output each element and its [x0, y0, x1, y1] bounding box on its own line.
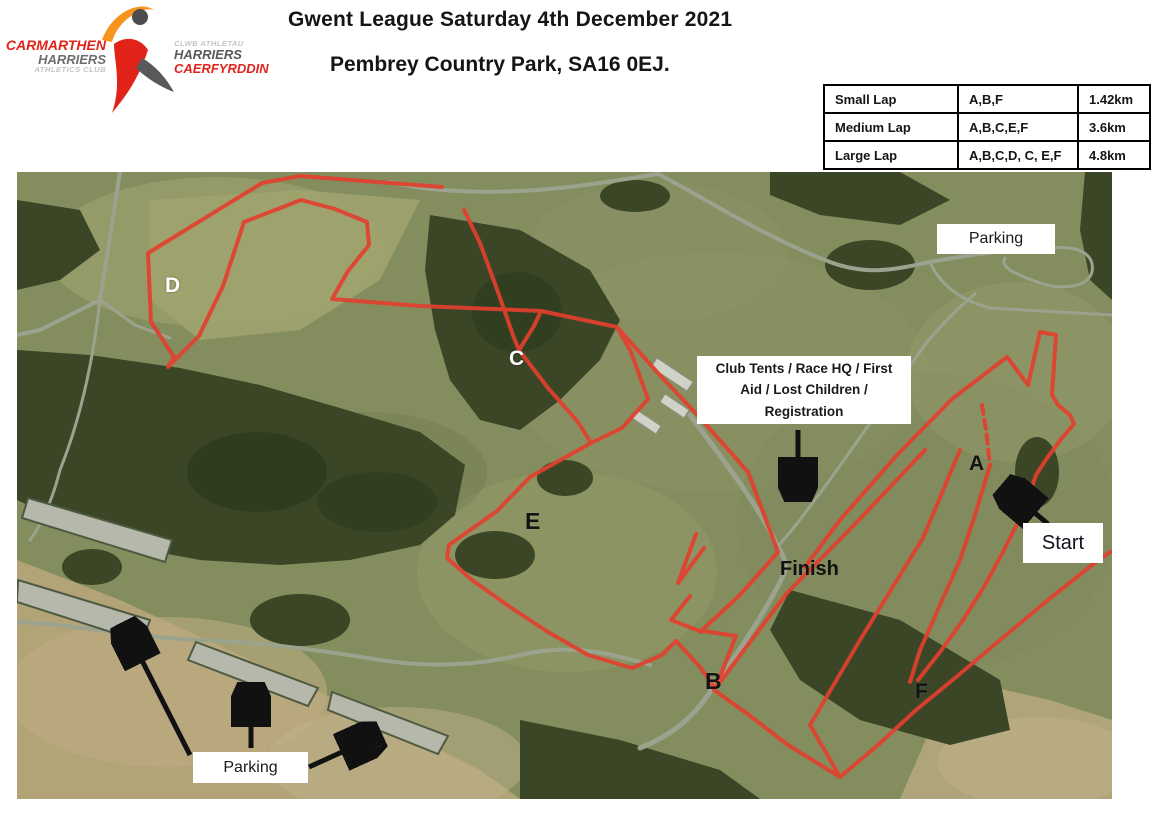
lap-sections-cell: A,B,C,D, C, E,F	[958, 141, 1078, 169]
checkpoint-b: B	[705, 668, 722, 695]
parking-label-top: Parking	[937, 224, 1055, 254]
table-row-large-lap: Large Lap A,B,C,D, C, E,F 4.8km	[824, 141, 1150, 169]
grass-clearing	[150, 190, 420, 340]
page-subtitle: Pembrey Country Park, SA16 0EJ.	[330, 53, 670, 77]
club-tents-line: Club Tents / Race HQ / First	[716, 358, 893, 379]
runner-figure-icon	[92, 0, 178, 114]
lap-name-cell: Medium Lap	[824, 113, 958, 141]
lap-sections-cell: A,B,C,E,F	[958, 113, 1078, 141]
aerial-imagery	[17, 172, 1112, 799]
club-tents-line: Registration	[765, 401, 844, 422]
aerial-course-map: Parking Club Tents / Race HQ / First Aid…	[17, 172, 1112, 799]
table-row-medium-lap: Medium Lap A,B,C,E,F 3.6km	[824, 113, 1150, 141]
lap-sections-cell: A,B,F	[958, 85, 1078, 113]
lap-distance-table: Small Lap A,B,F 1.42km Medium Lap A,B,C,…	[823, 84, 1151, 170]
logo-club-name-2: HARRIERS	[4, 53, 106, 67]
checkpoint-f: F	[915, 680, 928, 704]
checkpoint-e: E	[525, 508, 540, 535]
lap-distance-cell: 1.42km	[1078, 85, 1150, 113]
course-map-page: { "header": { "title": "Gwent League Sat…	[0, 0, 1153, 813]
lap-distance-cell: 3.6km	[1078, 113, 1150, 141]
lap-name-cell: Small Lap	[824, 85, 958, 113]
logo-text-english: CARMARTHEN HARRIERS ATHLETICS CLUB	[4, 38, 106, 74]
club-tents-line: Aid / Lost Children /	[740, 379, 868, 400]
lap-distance-cell: 4.8km	[1078, 141, 1150, 169]
club-logo: CARMARTHEN HARRIERS ATHLETICS CLUB CLWB …	[4, 0, 264, 118]
logo-welsh-line-2: HARRIERS	[174, 48, 284, 62]
logo-text-welsh: CLWB ATHLETAU HARRIERS CAERFYRDDIN	[174, 40, 284, 75]
page-title: Gwent League Saturday 4th December 2021	[288, 8, 732, 32]
start-label: Start	[1023, 523, 1103, 563]
logo-welsh-line-3: CAERFYRDDIN	[174, 62, 284, 76]
logo-club-name-3: ATHLETICS CLUB	[4, 66, 106, 74]
lap-name-cell: Large Lap	[824, 141, 958, 169]
checkpoint-d: D	[165, 274, 180, 298]
table-row-small-lap: Small Lap A,B,F 1.42km	[824, 85, 1150, 113]
club-tents-label: Club Tents / Race HQ / First Aid / Lost …	[697, 356, 911, 424]
logo-club-name: CARMARTHEN	[4, 38, 106, 53]
checkpoint-a: A	[969, 452, 984, 476]
checkpoint-c: C	[509, 347, 524, 371]
finish-label: Finish	[780, 558, 839, 581]
parking-label-bottom: Parking	[193, 752, 308, 783]
